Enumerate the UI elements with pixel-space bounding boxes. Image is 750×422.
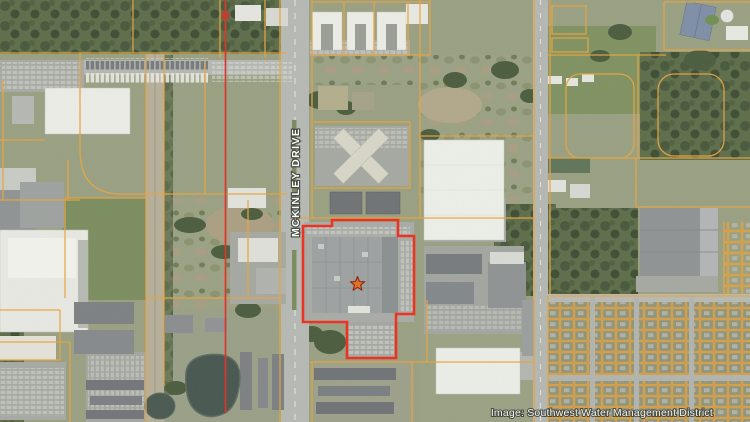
street-label-mckinley-drive: MCKINLEY DRIVE — [290, 128, 302, 237]
aerial-map: MCKINLEY DRIVE Image: Southwest Water Ma… — [0, 0, 750, 422]
imagery-grain — [0, 0, 750, 422]
attribution-text: Image: Southwest Water Management Distri… — [491, 407, 713, 419]
